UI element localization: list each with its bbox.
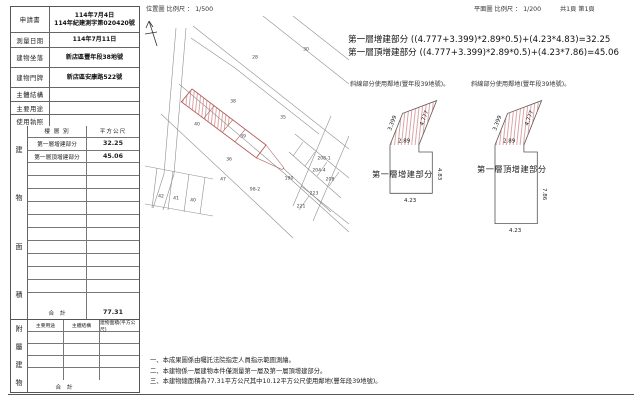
footnote-line: 三、本建物總面積為77.31平方公尺其中10.12平方公尺使用鄰地(豐年段39地…	[150, 377, 382, 388]
info-field-label: 建物門牌	[11, 68, 50, 87]
parcel-number: 39	[240, 135, 246, 140]
annex-total-value	[100, 380, 139, 392]
floor-area-value: 32.25	[87, 138, 139, 150]
annex-total-label: 合 計	[28, 380, 100, 392]
empty-row	[28, 202, 139, 215]
dim-height: 4.83	[436, 168, 442, 181]
footnotes: 一、本成果圖係由囑託法院指定人員指示範圍測繪。二、本建物係一層建物本件僅測量第一…	[150, 356, 382, 388]
footnote-line: 一、本成果圖係由囑託法院指定人員指示範圍測繪。	[150, 356, 382, 367]
info-field-value	[50, 102, 139, 114]
parcel-number: 30	[303, 48, 309, 53]
info-field-label: 主要用途	[11, 102, 50, 114]
floor-area-value: 45.06	[87, 151, 139, 163]
dim-bottom: 4.23	[509, 228, 522, 234]
parcel-number: 208-1	[317, 157, 330, 162]
hatch-note-right: 斜線部分使用鄰地(豐年段39地號)。	[471, 79, 570, 88]
parcel-number: 38	[230, 100, 236, 105]
roof-addition-diagram: 3.399 4.777 2.89 7.86 4.23 第一層頂增建部分	[477, 90, 589, 242]
floor-column-header: 樓 層 別	[28, 126, 87, 137]
empty-row	[28, 176, 139, 189]
floor-area-section: 建物面積 樓 層 別 平方公尺 第一層增建部分 32.25 第一層頂增建部分 4…	[10, 126, 140, 320]
empty-row	[28, 344, 139, 356]
parcel-boundary-lines	[145, 16, 349, 238]
info-row: 主體結構	[11, 88, 139, 102]
parcel-number: 208	[326, 178, 335, 183]
parcel-number: 36	[226, 158, 232, 163]
empty-row	[28, 228, 139, 241]
info-row: 測量日期114年7月11日	[11, 33, 139, 48]
dim-top-width: 2.89	[398, 139, 411, 145]
dim-top-width: 2.89	[503, 139, 516, 145]
first-floor-addition-diagram: 3.399 4.777 2.89 4.83 4.23 第一層增建部分	[372, 90, 484, 210]
sheet-bottom-border	[8, 394, 634, 395]
location-map-scale-label: 位置圖 比例尺 ： 1/500	[146, 4, 213, 13]
info-row: 建物坐落新店區豐年段38地號	[11, 48, 139, 68]
total-row: 合 計 77.31	[28, 306, 139, 319]
parcel-number: 98-2	[250, 188, 260, 193]
info-field-value: 114年7月11日	[50, 33, 139, 47]
info-field-label: 主體結構	[11, 88, 50, 101]
table-row: 第一層頂增建部分 45.06	[28, 151, 139, 164]
parcel-number: 42	[158, 195, 164, 200]
annex-structure-header: 主體結構	[64, 320, 100, 331]
empty-row	[28, 368, 139, 380]
dim-bottom: 4.23	[404, 198, 417, 204]
parcel-number: 190	[285, 177, 294, 182]
annex-side-label: 附屬建物	[11, 320, 28, 392]
table-row: 第一層增建部分 32.25	[28, 138, 139, 151]
info-field-value: 新店區安康路522號	[50, 68, 139, 87]
parcel-number: 40	[194, 123, 200, 128]
north-arrow-icon	[145, 21, 157, 46]
floor-area-header-row: 樓 層 別 平方公尺	[28, 126, 139, 138]
hatched-neighbor-land-area	[181, 89, 232, 133]
parcel-number: 41	[173, 197, 179, 202]
parcel-number: 28	[252, 56, 258, 61]
survey-sheet: 位置圖 比例尺 ： 1/500 平面圖 比例尺 ： 1/200 共1頁 第1頁 …	[0, 0, 640, 403]
dim-height: 7.86	[541, 188, 547, 201]
floor-area-side-label: 建物面積	[11, 126, 28, 319]
info-row: 主要用途	[11, 102, 139, 115]
hatched-area	[390, 101, 437, 145]
cadastral-map: 283038403935364742414019098-2208-1204-42…	[143, 16, 349, 360]
hatch-note-left: 斜線部分使用鄰地(豐年段39地號)。	[350, 79, 449, 88]
info-row: 申請書114年7月4日114年紀建測字第020420號	[11, 7, 139, 33]
info-field-value	[50, 88, 139, 101]
empty-row	[28, 254, 139, 267]
info-field-label: 測量日期	[11, 33, 50, 47]
sqm-column-header: 平方公尺	[87, 126, 139, 137]
parcel-number: 204-4	[312, 169, 325, 174]
empty-row	[28, 293, 139, 306]
info-field-value: 新店區豐年段38地號	[50, 48, 139, 67]
empty-row	[28, 356, 139, 368]
formula-line: 第一層增建部分 ((4.777+3.399)*2.89*0.5)+(4.23*4…	[348, 34, 619, 47]
info-field-label: 建物坐落	[11, 48, 50, 67]
parcel-number: 47	[220, 178, 226, 183]
info-field-value: 114年7月4日114年紀建測字第020420號	[50, 7, 139, 32]
empty-row	[28, 267, 139, 280]
empty-row	[28, 280, 139, 293]
footnote-line: 二、本建物係一層建物本件僅測量第一層及第一層頂增建部分。	[150, 367, 382, 378]
total-label: 合 計	[28, 306, 87, 319]
parcel-number: 221	[297, 205, 306, 210]
empty-row	[28, 215, 139, 228]
cadastral-map-svg	[143, 16, 349, 360]
info-field-label: 申請書	[11, 7, 50, 32]
parcel-number: 35	[280, 116, 286, 121]
parcel-number: 40	[190, 199, 196, 204]
annex-use-header: 主要用途	[28, 320, 64, 331]
annex-building-section: 附屬建物 主要用途 主體結構 建物面積(平方公尺) 合 計	[10, 320, 140, 393]
plan-scale-label: 平面圖 比例尺 ： 1/200	[474, 4, 541, 13]
annex-area-header: 建物面積(平方公尺)	[100, 320, 139, 331]
hatched-area	[495, 101, 542, 145]
formula-line: 第一層頂增建部分 ((4.777+3.399)*2.89*0.5)+(4.23*…	[348, 47, 619, 60]
annex-total-row: 合 計	[28, 380, 139, 392]
empty-row	[28, 332, 139, 344]
floor-label: 第一層增建部分	[28, 138, 87, 150]
diagram-title: 第一層增建部分	[372, 169, 433, 179]
empty-row	[28, 163, 139, 176]
building-info-table: 申請書114年7月4日114年紀建測字第020420號測量日期114年7月11日…	[10, 6, 140, 128]
page-count-label: 共1頁 第1頁	[560, 4, 595, 13]
floor-label: 第一層頂增建部分	[28, 151, 87, 163]
parcel-number: 223	[310, 192, 319, 197]
empty-row	[28, 241, 139, 254]
annex-header-row: 主要用途 主體結構 建物面積(平方公尺)	[28, 320, 139, 332]
diagram-title: 第一層頂增建部分	[477, 164, 547, 174]
area-formulas: 第一層增建部分 ((4.777+3.399)*2.89*0.5)+(4.23*4…	[348, 34, 619, 60]
total-area-value: 77.31	[87, 306, 139, 319]
empty-row	[28, 189, 139, 202]
info-row: 建物門牌新店區安康路522號	[11, 68, 139, 88]
